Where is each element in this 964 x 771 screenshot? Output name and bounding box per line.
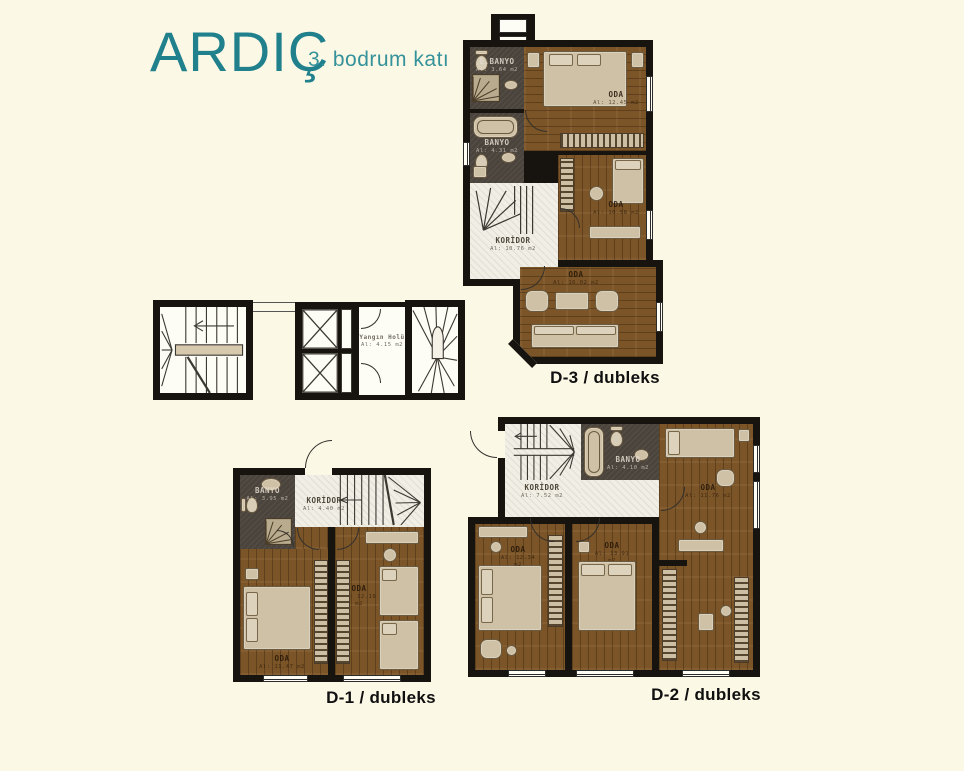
armchair [595, 290, 619, 312]
window [343, 675, 401, 682]
winder-stairs-icon [412, 307, 458, 393]
pillow [246, 592, 258, 616]
nightstand [738, 429, 750, 442]
coffee-table [555, 292, 589, 310]
wardrobe [314, 560, 328, 664]
desk [478, 526, 528, 538]
window [646, 210, 653, 240]
room-label-oda-right: ODAAl: 11.76 m2 [680, 483, 736, 500]
wardrobe [548, 535, 563, 627]
room-label-oda-living: ODAAl: 16.02 m2 [551, 270, 601, 287]
window [508, 670, 546, 677]
room-label-oda-top: ODAAl: 12.45 m2 [591, 90, 641, 107]
pillow [481, 597, 493, 623]
pillow [246, 618, 258, 642]
armchair [525, 290, 549, 312]
nightstand [631, 52, 644, 68]
plan-d1-label: D-1 / dubleks [293, 688, 469, 708]
window [576, 670, 634, 677]
plan-d3-label: D-3 / dubleks [517, 368, 693, 388]
window [753, 481, 760, 529]
elevator-icon [302, 353, 338, 393]
nightstand [578, 541, 590, 553]
desk [365, 531, 419, 544]
room-label-ebanyo: E.BANYOAl: 3.64 m2 [470, 57, 524, 74]
window [463, 142, 470, 166]
window [656, 302, 663, 332]
desk [678, 539, 724, 552]
bathtub [473, 116, 518, 138]
pillow [668, 431, 680, 455]
fire-hall-label: Yangın Holü Al: 4.15 m2 [357, 334, 407, 349]
dresser [589, 226, 641, 239]
chair [383, 548, 397, 562]
toilet [610, 431, 623, 447]
pillow [549, 54, 573, 66]
partition-stub [659, 560, 687, 566]
window [646, 76, 653, 112]
corridor-opening [253, 302, 295, 312]
nightstand [527, 52, 540, 68]
floor-subtitle: 3. bodrum katı [308, 48, 449, 72]
nightstand [245, 568, 259, 580]
plan-d2-label: D-2 / dubleks [618, 685, 794, 705]
pillow [608, 564, 632, 576]
chair [694, 521, 707, 534]
room-label-banyo: BANYOAl: 4.10 m2 [604, 455, 652, 472]
entry-door-swing [305, 440, 332, 468]
chimney-shaft [499, 19, 527, 33]
floorplan-page: ARDIÇ 3. bodrum katı E.BANYOAl: 3.64 m2 [0, 0, 964, 771]
core-plan: Yangın Holü Al: 4.15 m2 [153, 292, 465, 404]
entry-door-swing [470, 431, 497, 458]
elevator-door-slot [341, 309, 352, 349]
plan-d3: E.BANYOAl: 3.64 m2 BANYOAl: 4.31 m2 ODAA… [463, 14, 665, 392]
sink [504, 80, 518, 90]
wardrobe [734, 577, 749, 663]
pillow [615, 160, 641, 170]
plan-d2: KORİDORAl: 7.52 m2 BANYOAl: 4.10 m2 ODAA… [468, 417, 764, 702]
room-label-banyo: BANYOAl: 3.95 m2 [240, 486, 295, 503]
pillow [577, 54, 601, 66]
room-label-koridor: KORİDORAl: 7.52 m2 [506, 483, 578, 500]
cabinet [473, 166, 487, 178]
chair [589, 186, 604, 201]
stairs-icon [508, 424, 580, 480]
sofa-cushion [576, 326, 616, 335]
room-label-oda-left: ODAAl: 12.34 m2 [496, 545, 540, 569]
project-title: ARDIÇ [150, 24, 329, 80]
room-label-koridor: KORİDORAl: 4.40 m2 [295, 496, 353, 513]
shower-icon [472, 74, 500, 102]
room-label-oda-left: ODAAl: 11.47 m2 [257, 654, 307, 671]
sofa-cushion [534, 326, 574, 335]
pillow [382, 623, 397, 635]
window [753, 445, 760, 473]
stairs-icon [160, 307, 246, 393]
room-label-banyo: BANYOAl: 4.31 m2 [470, 138, 524, 155]
window [263, 675, 308, 682]
room-label-oda-mid: ODAAl: 10.58 m2 [591, 200, 641, 217]
side-table [698, 613, 714, 631]
elevator-door-slot [341, 353, 352, 393]
pillow [382, 569, 397, 581]
wardrobe [560, 158, 574, 212]
room-label-koridor: KORİDORAl: 10.76 m2 [477, 236, 549, 253]
chair [720, 605, 732, 617]
stairs-icon [475, 186, 535, 234]
window [682, 670, 730, 677]
wardrobe [560, 133, 644, 148]
elevator-icon [302, 309, 338, 349]
wardrobe [662, 569, 677, 661]
armchair [480, 639, 502, 659]
wardrobe [336, 560, 350, 664]
plan-d1: KORİDORAl: 4.40 m2 BANYOAl: 3.95 m2 ODAA… [233, 436, 433, 712]
bathtub [584, 427, 604, 477]
ottoman [506, 645, 517, 656]
pillow [581, 564, 605, 576]
corridor-floor [581, 480, 659, 517]
pillow [481, 569, 493, 595]
